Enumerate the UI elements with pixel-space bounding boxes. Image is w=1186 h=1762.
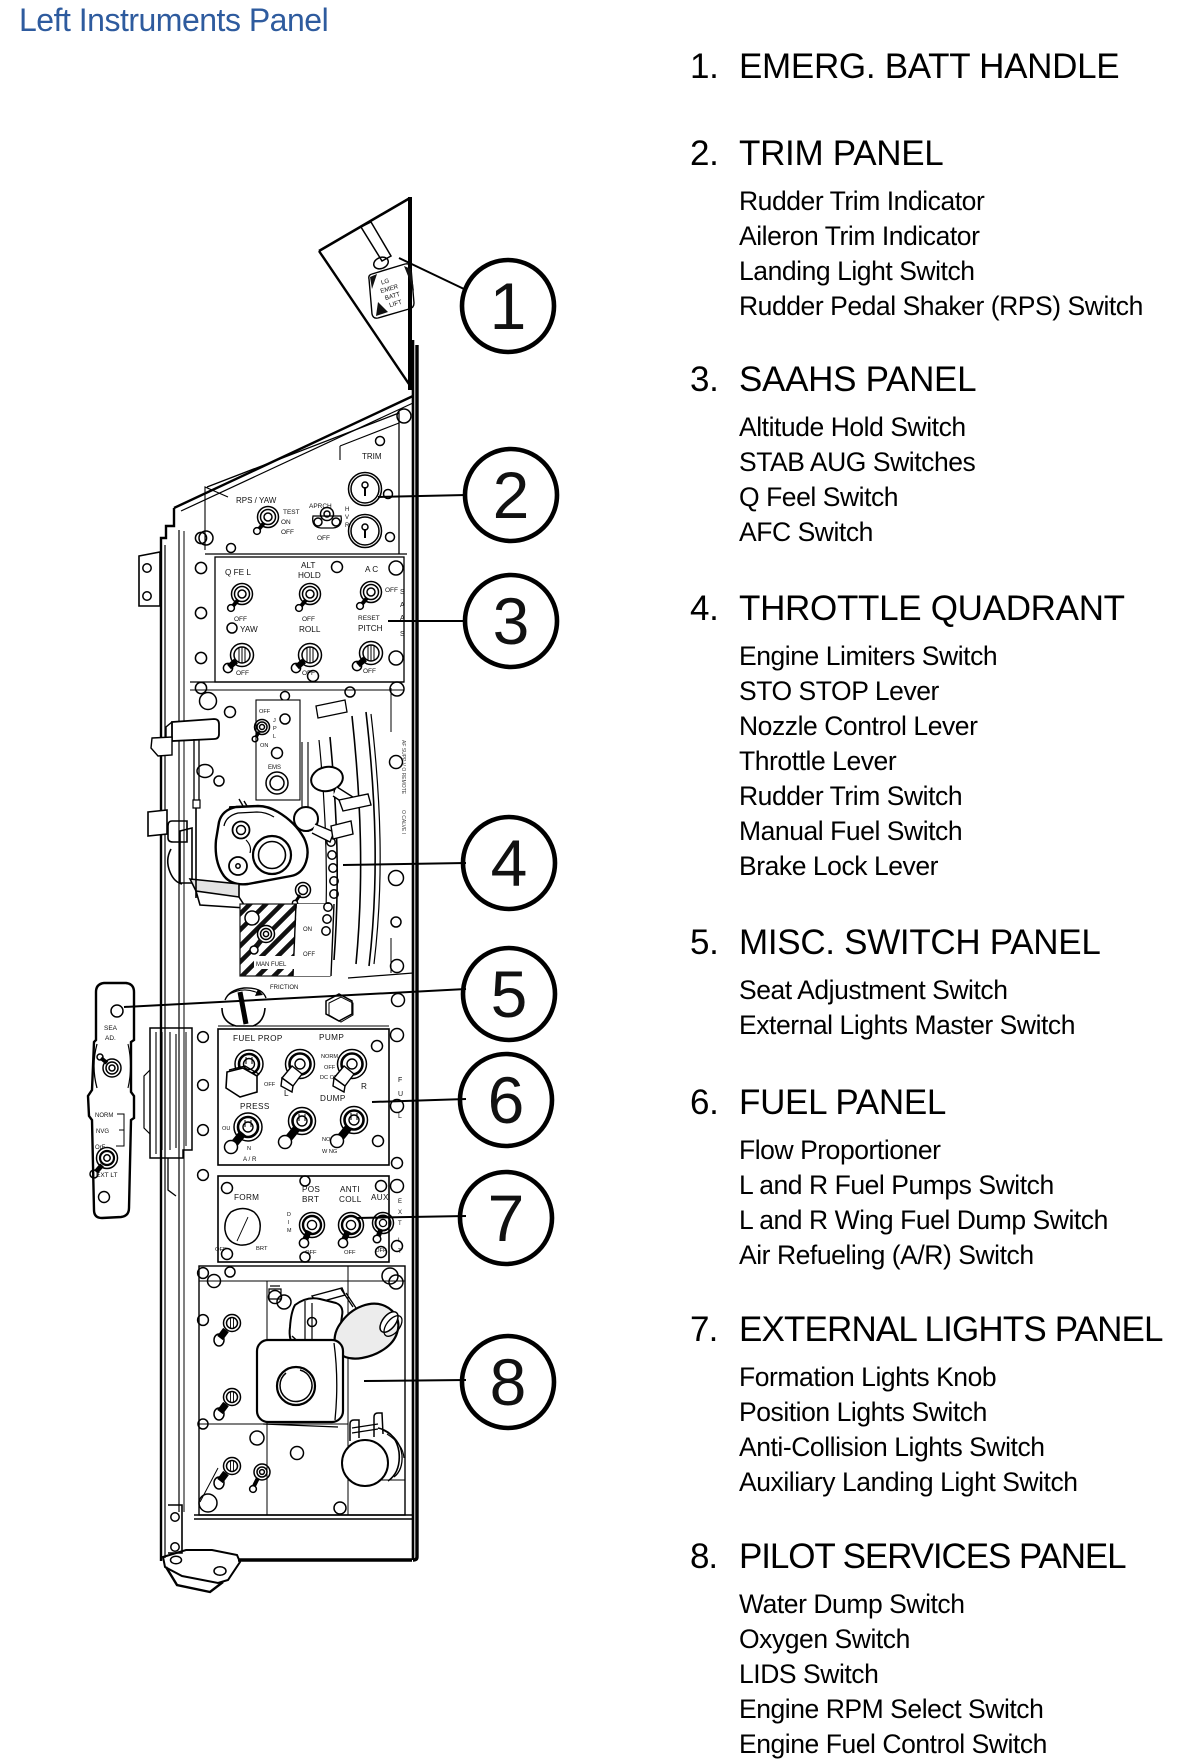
svg-text:RESET: RESET (358, 615, 380, 622)
svg-text:DUMP: DUMP (320, 1094, 346, 1103)
svg-text:6: 6 (488, 1063, 525, 1137)
svg-text:U: U (398, 1091, 403, 1098)
svg-text:R: R (345, 523, 350, 529)
svg-text:FUEL PROP: FUEL PROP (233, 1034, 283, 1043)
svg-text:A / R: A / R (243, 1156, 257, 1163)
svg-text:ON: ON (260, 743, 268, 749)
svg-text:BRT: BRT (256, 1246, 268, 1252)
svg-text:OFF: OFF (317, 535, 330, 542)
svg-text:YAW: YAW (240, 625, 258, 634)
svg-text:OFF: OFF (215, 1247, 227, 1253)
svg-text:N: N (247, 1146, 251, 1152)
svg-text:V: V (345, 515, 349, 521)
svg-text:FRICTION: FRICTION (270, 985, 298, 991)
svg-text:P: P (273, 726, 277, 732)
svg-text:S: S (400, 589, 405, 596)
svg-text:1: 1 (490, 269, 527, 343)
svg-text:OFF: OFF (344, 1250, 356, 1256)
svg-text:AF SUPP V O REMOTE: AF SUPP V O REMOTE (400, 740, 406, 795)
svg-text:7: 7 (488, 1181, 525, 1255)
svg-text:T: T (398, 1221, 402, 1227)
svg-text:OFF: OFF (363, 668, 376, 675)
svg-text:PITCH: PITCH (358, 624, 383, 633)
svg-text:EMS: EMS (268, 765, 281, 771)
svg-text:TRIM: TRIM (362, 452, 382, 461)
svg-text:Q FE L: Q FE L (225, 568, 251, 577)
svg-text:OFF: OFF (303, 952, 315, 958)
svg-text:APRCH: APRCH (309, 503, 332, 510)
svg-text:ALT: ALT (301, 561, 315, 570)
svg-text:3: 3 (493, 584, 530, 658)
svg-text:RPS / YAW: RPS / YAW (236, 496, 277, 505)
svg-text:NORM: NORM (95, 1113, 113, 1119)
svg-text:J: J (273, 718, 276, 724)
svg-text:O CALVE I: O CALVE I (400, 810, 406, 834)
svg-text:A C: A C (365, 565, 378, 574)
svg-text:S: S (400, 631, 405, 638)
svg-text:AD.: AD. (105, 1035, 116, 1042)
svg-text:R: R (361, 1082, 367, 1091)
svg-text:8: 8 (490, 1345, 527, 1419)
svg-text:SEA: SEA (104, 1025, 118, 1032)
svg-text:M: M (287, 1228, 292, 1234)
svg-text:X: X (398, 1210, 402, 1216)
svg-text:FORM: FORM (234, 1193, 259, 1202)
svg-text:A: A (400, 602, 405, 609)
svg-text:AUX: AUX (371, 1193, 389, 1202)
svg-text:OFF: OFF (236, 670, 249, 677)
svg-text:COLL: COLL (339, 1195, 362, 1204)
svg-text:D: D (287, 1212, 291, 1218)
svg-text:OFF: OFF (281, 529, 294, 536)
svg-text:ROLL: ROLL (299, 625, 321, 634)
svg-text:H: H (345, 507, 349, 513)
svg-text:5: 5 (491, 957, 528, 1031)
svg-text:ANTI: ANTI (340, 1185, 360, 1194)
svg-text:I: I (288, 1220, 290, 1226)
svg-text:OFF: OFF (385, 587, 398, 594)
svg-text:L: L (398, 1113, 402, 1120)
svg-text:OFF: OFF (264, 1082, 276, 1088)
svg-text:OFF: OFF (234, 616, 247, 623)
svg-text:OFF: OFF (259, 709, 271, 715)
svg-text:2: 2 (493, 458, 530, 532)
svg-text:F: F (398, 1077, 402, 1084)
svg-text:NORM: NORM (321, 1054, 338, 1060)
svg-text:BRT: BRT (302, 1195, 319, 1204)
svg-text:OFF: OFF (302, 616, 315, 623)
svg-text:PRESS: PRESS (240, 1102, 270, 1111)
svg-text:L: L (273, 734, 276, 740)
svg-text:NVG: NVG (96, 1129, 109, 1135)
svg-text:ON: ON (281, 519, 291, 526)
svg-text:EXT LT: EXT LT (96, 1172, 117, 1179)
svg-text:W NG: W NG (322, 1149, 337, 1155)
svg-text:HOLD: HOLD (298, 571, 321, 580)
svg-text:OU: OU (222, 1126, 230, 1132)
svg-text:TEST: TEST (283, 509, 300, 516)
svg-text:E: E (398, 1199, 402, 1205)
svg-text:MAN FUEL: MAN FUEL (256, 962, 287, 968)
svg-text:ON: ON (303, 927, 312, 933)
svg-text:4: 4 (491, 826, 528, 900)
svg-text:OFF: OFF (324, 1065, 336, 1071)
svg-text:PUMP: PUMP (319, 1033, 344, 1042)
